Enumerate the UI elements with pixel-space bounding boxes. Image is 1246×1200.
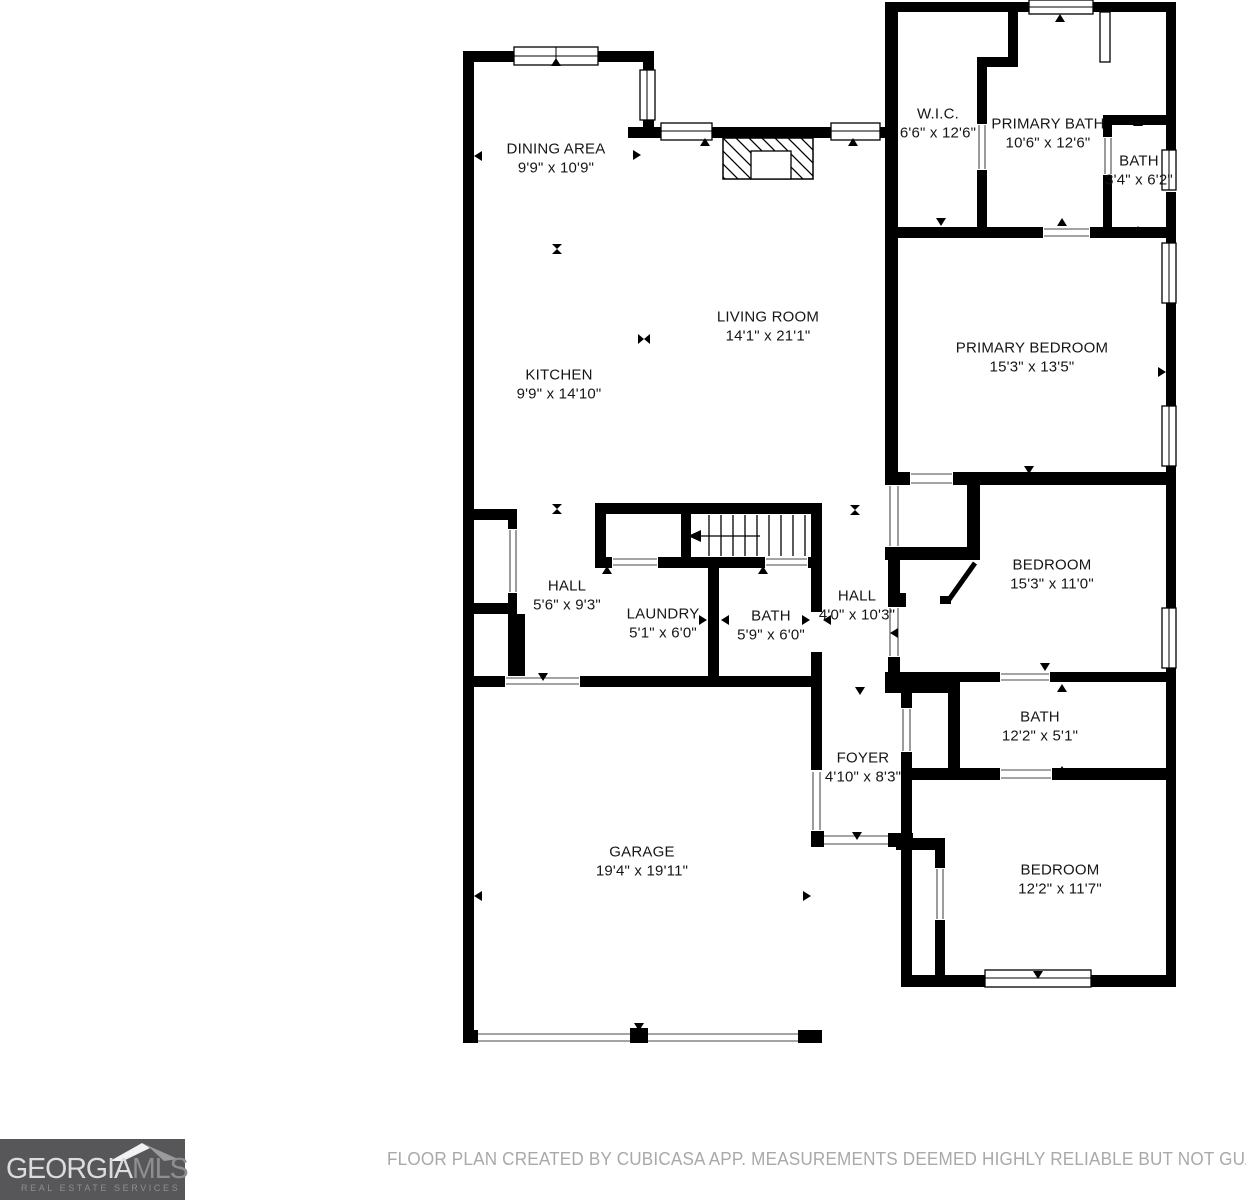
room-label-bedroom-lower: BEDROOM 12'2" x 11'7" xyxy=(1018,862,1102,899)
fireplace-icon xyxy=(723,138,813,179)
room-label-bath-lower: BATH 12'2" x 5'1" xyxy=(1002,709,1078,746)
room-label-laundry: LAUNDRY 5'1" x 6'0" xyxy=(627,606,700,643)
georgiamls-logo: GEORGIAMLS REAL ESTATE SERVICES xyxy=(0,1139,185,1200)
room-label-primary-bedroom: PRIMARY BEDROOM 15'3" x 13'5" xyxy=(956,340,1108,377)
window-midlines xyxy=(514,7,1169,978)
door-leaf-icon xyxy=(940,563,975,604)
room-label-garage: GARAGE 19'4" x 19'11" xyxy=(596,844,688,881)
room-label-bedroom-mid: BEDROOM 15'3" x 11'0" xyxy=(1010,557,1094,594)
room-label-foyer: FOYER 4'10" x 8'3" xyxy=(825,750,901,787)
room-label-bath-upper: BATH 3'4" x 6'2" xyxy=(1105,153,1173,190)
logo-text-georgia: GEORGIA xyxy=(6,1153,132,1185)
room-label-primary-bath: PRIMARY BATH 10'6" x 12'6" xyxy=(991,116,1104,153)
room-label-living-room: LIVING ROOM 14'1" x 21'1" xyxy=(717,309,819,346)
room-label-wic: W.I.C. 6'6" x 12'6" xyxy=(900,106,976,143)
room-label-hall-main: HALL 5'6" x 9'3" xyxy=(533,578,601,615)
logo-brand: GEORGIAMLS xyxy=(6,1155,188,1183)
disclaimer-text: FLOOR PLAN CREATED BY CUBICASA APP. MEAS… xyxy=(387,1149,1246,1170)
room-label-kitchen: KITCHEN 9'9" x 14'10" xyxy=(517,367,602,404)
room-label-hall-rear: HALL 4'0" x 10'3" xyxy=(819,588,895,625)
room-label-dining-area: DINING AREA 9'9" x 10'9" xyxy=(507,141,606,178)
logo-text-mls: MLS xyxy=(132,1153,188,1185)
room-label-bath-mid: BATH 5'9" x 6'0" xyxy=(737,608,805,645)
stairs-icon xyxy=(688,515,805,556)
floor-plan: DINING AREA 9'9" x 10'9" KITCHEN 9'9" x … xyxy=(0,0,1246,1200)
logo-tagline: REAL ESTATE SERVICES xyxy=(21,1183,180,1193)
floorplan-drawing xyxy=(0,0,1246,1200)
